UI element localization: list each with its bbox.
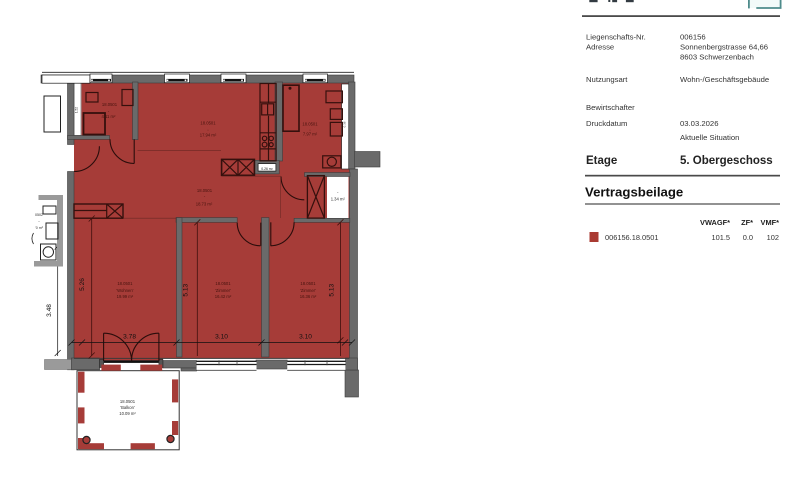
- svg-text:ZF*: ZF*: [741, 218, 753, 227]
- svg-text:18.0501: 18.0501: [117, 281, 133, 286]
- svg-text:3.10: 3.10: [299, 334, 312, 341]
- svg-text:⌄: ⌄: [107, 109, 110, 113]
- svg-text:006156.18.0501: 006156.18.0501: [605, 233, 658, 242]
- svg-text:'Balkon': 'Balkon': [120, 405, 135, 410]
- svg-text:⌄: ⌄: [207, 128, 210, 132]
- svg-text:1.34 m²: 1.34 m²: [331, 197, 346, 202]
- svg-text:Wohn-/Geschäftsgebäude: Wohn-/Geschäftsgebäude: [680, 75, 769, 84]
- svg-text:0502: 0502: [35, 213, 43, 217]
- svg-text:5.26: 5.26: [79, 278, 86, 291]
- svg-text:18.0501: 18.0501: [215, 281, 231, 286]
- svg-text:0.38: 0.38: [342, 121, 346, 127]
- svg-text:Liegenschafts-Nr.: Liegenschafts-Nr.: [586, 32, 646, 41]
- svg-text:⌄: ⌄: [203, 194, 206, 198]
- svg-text:03.03.2026: 03.03.2026: [680, 119, 718, 128]
- svg-text:VMF*: VMF*: [761, 218, 780, 227]
- svg-text:3.10: 3.10: [215, 334, 228, 341]
- svg-text:18.0501: 18.0501: [120, 399, 136, 404]
- svg-text:Druckdatum: Druckdatum: [586, 119, 627, 128]
- svg-text:Vertragsbeilage: Vertragsbeilage: [585, 184, 683, 199]
- svg-text:⌄: ⌄: [337, 190, 340, 194]
- svg-text:18.0501: 18.0501: [302, 122, 318, 127]
- svg-text:7.97 m²: 7.97 m²: [303, 132, 318, 137]
- svg-text:3.78: 3.78: [123, 334, 136, 341]
- svg-text:17.94 m²: 17.94 m²: [200, 133, 217, 138]
- svg-text:18.0501: 18.0501: [197, 188, 213, 193]
- svg-text:'0 m²: '0 m²: [35, 226, 44, 230]
- svg-text:Sonnenbergstrasse 64,66: Sonnenbergstrasse 64,66: [680, 42, 768, 51]
- svg-text:Adresse: Adresse: [586, 42, 614, 51]
- svg-text:VWAGF*: VWAGF*: [700, 218, 730, 227]
- svg-text:4.11 m²: 4.11 m²: [102, 114, 116, 119]
- svg-text:101.5: 101.5: [712, 233, 731, 242]
- svg-text:1.52: 1.52: [75, 107, 79, 113]
- svg-text:5.13: 5.13: [182, 283, 189, 296]
- svg-text:10.09 m²: 10.09 m²: [119, 411, 136, 416]
- svg-text:006156: 006156: [680, 32, 706, 41]
- svg-text:⌄: ⌄: [38, 219, 41, 223]
- svg-text:Nutzungsart: Nutzungsart: [586, 75, 628, 84]
- svg-text:Aktuelle Situation: Aktuelle Situation: [680, 133, 739, 142]
- svg-text:18.0501: 18.0501: [102, 102, 118, 107]
- svg-text:18.0501: 18.0501: [300, 281, 316, 286]
- svg-text:16.36 m²: 16.36 m²: [300, 294, 317, 299]
- svg-text:Bewirtschafter: Bewirtschafter: [586, 103, 635, 112]
- svg-text:19.99 m²: 19.99 m²: [117, 294, 134, 299]
- svg-text:5.13: 5.13: [329, 283, 336, 296]
- svg-text:0.26 m²: 0.26 m²: [261, 167, 273, 171]
- svg-text:'Wohnen': 'Wohnen': [116, 288, 133, 293]
- svg-text:3.48: 3.48: [46, 304, 53, 317]
- svg-text:'Zimmer': 'Zimmer': [215, 288, 231, 293]
- svg-text:Etage: Etage: [586, 155, 617, 167]
- svg-text:'Zimmer': 'Zimmer': [300, 288, 316, 293]
- svg-text:18.0501: 18.0501: [200, 121, 216, 126]
- svg-text:8603 Schwerzenbach: 8603 Schwerzenbach: [680, 52, 754, 61]
- svg-text:0.0: 0.0: [743, 233, 753, 242]
- svg-text:18.73 m²: 18.73 m²: [196, 201, 213, 206]
- svg-text:16.42 m²: 16.42 m²: [215, 294, 232, 299]
- svg-text:102: 102: [767, 233, 779, 242]
- svg-text:5. Obergeschoss: 5. Obergeschoss: [680, 155, 773, 167]
